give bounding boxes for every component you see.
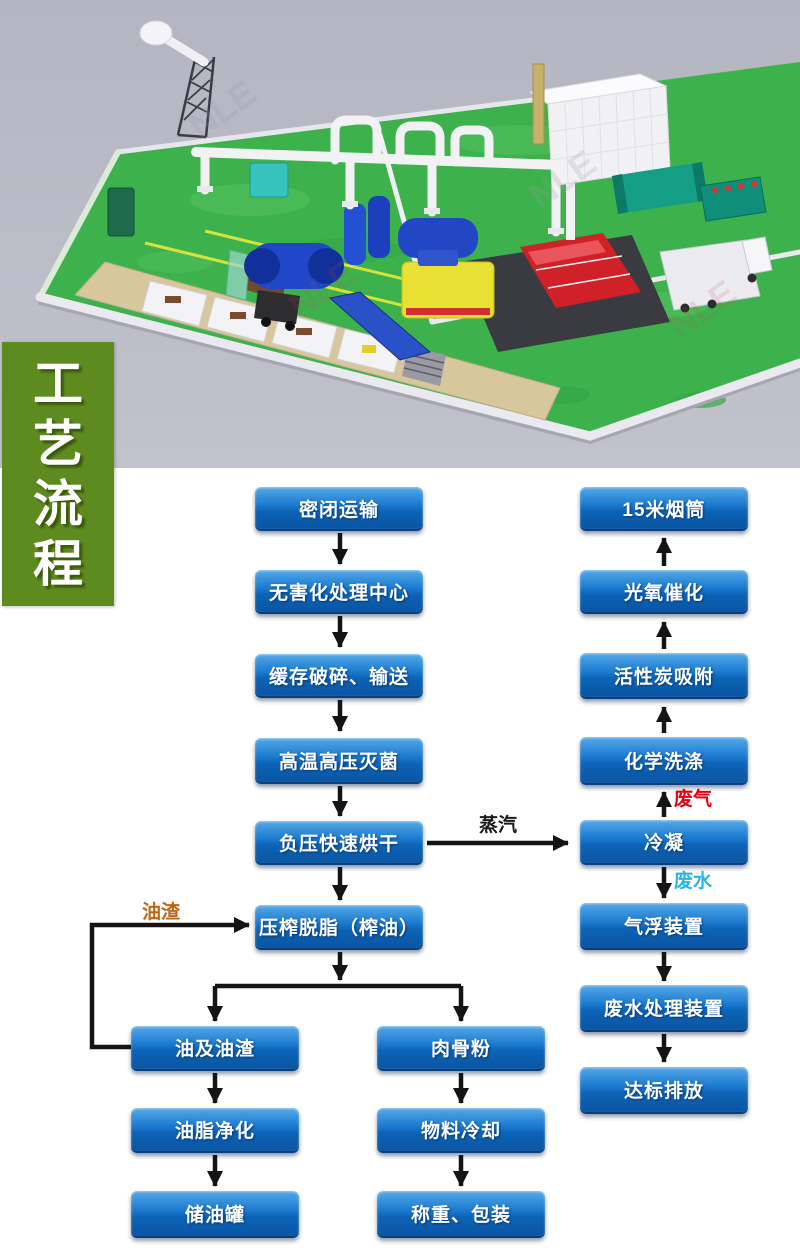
flow-node-high-temp-sterilize: 高温高压灭菌 <box>255 738 423 784</box>
flow-label-oil-residue: 油渣 <box>142 897 180 924</box>
flow-node-photo-oxygen: 光氧催化 <box>580 570 748 614</box>
flow-label-steam: 蒸汽 <box>452 810 544 837</box>
flow-node-air-flotation: 气浮装置 <box>580 903 748 950</box>
banner-char: 工 <box>33 359 83 409</box>
flow-node-oil-purification: 油脂净化 <box>131 1108 299 1153</box>
flow-node-oil-storage-tank: 储油罐 <box>131 1191 299 1238</box>
flow-node-oil-and-residue: 油及油渣 <box>131 1026 299 1071</box>
banner-char: 艺 <box>33 419 83 469</box>
flow-node-condensation: 冷凝 <box>580 820 748 865</box>
flow-node-sealed-transport: 密闭运输 <box>255 487 423 531</box>
flow-node-weigh-pack: 称重、包装 <box>377 1191 545 1238</box>
flow-node-chemical-washing: 化学洗涤 <box>580 737 748 785</box>
flow-node-treatment-center: 无害化处理中心 <box>255 570 423 614</box>
flow-node-meat-bone-meal: 肉骨粉 <box>377 1026 545 1071</box>
flow-node-wastewater-unit: 废水处理装置 <box>580 985 748 1032</box>
flow-node-vacuum-drying: 负压快速烘干 <box>255 821 423 865</box>
process-flow-banner: 工 艺 流 程 <box>2 342 114 606</box>
flow-node-chimney-15m: 15米烟筒 <box>580 487 748 531</box>
process-flowchart: 密闭运输无害化处理中心缓存破碎、输送高温高压灭菌负压快速烘干压榨脱脂（榨油）油及… <box>0 0 800 1250</box>
infographic-page: NLE NLE NLE NLE 工 艺 流 程 <box>0 0 800 1250</box>
flow-node-standard-discharge: 达标排放 <box>580 1067 748 1114</box>
flow-node-press-degrease: 压榨脱脂（榨油） <box>255 905 423 950</box>
banner-char: 程 <box>33 539 83 589</box>
flow-label-waste-water: 废水 <box>674 866 712 893</box>
banner-char: 流 <box>33 479 83 529</box>
flow-node-buffer-crush-convey: 缓存破碎、输送 <box>255 654 423 698</box>
flow-node-material-cooling: 物料冷却 <box>377 1108 545 1153</box>
flow-label-waste-gas: 废气 <box>674 784 712 811</box>
flow-node-activated-carbon: 活性炭吸附 <box>580 653 748 699</box>
